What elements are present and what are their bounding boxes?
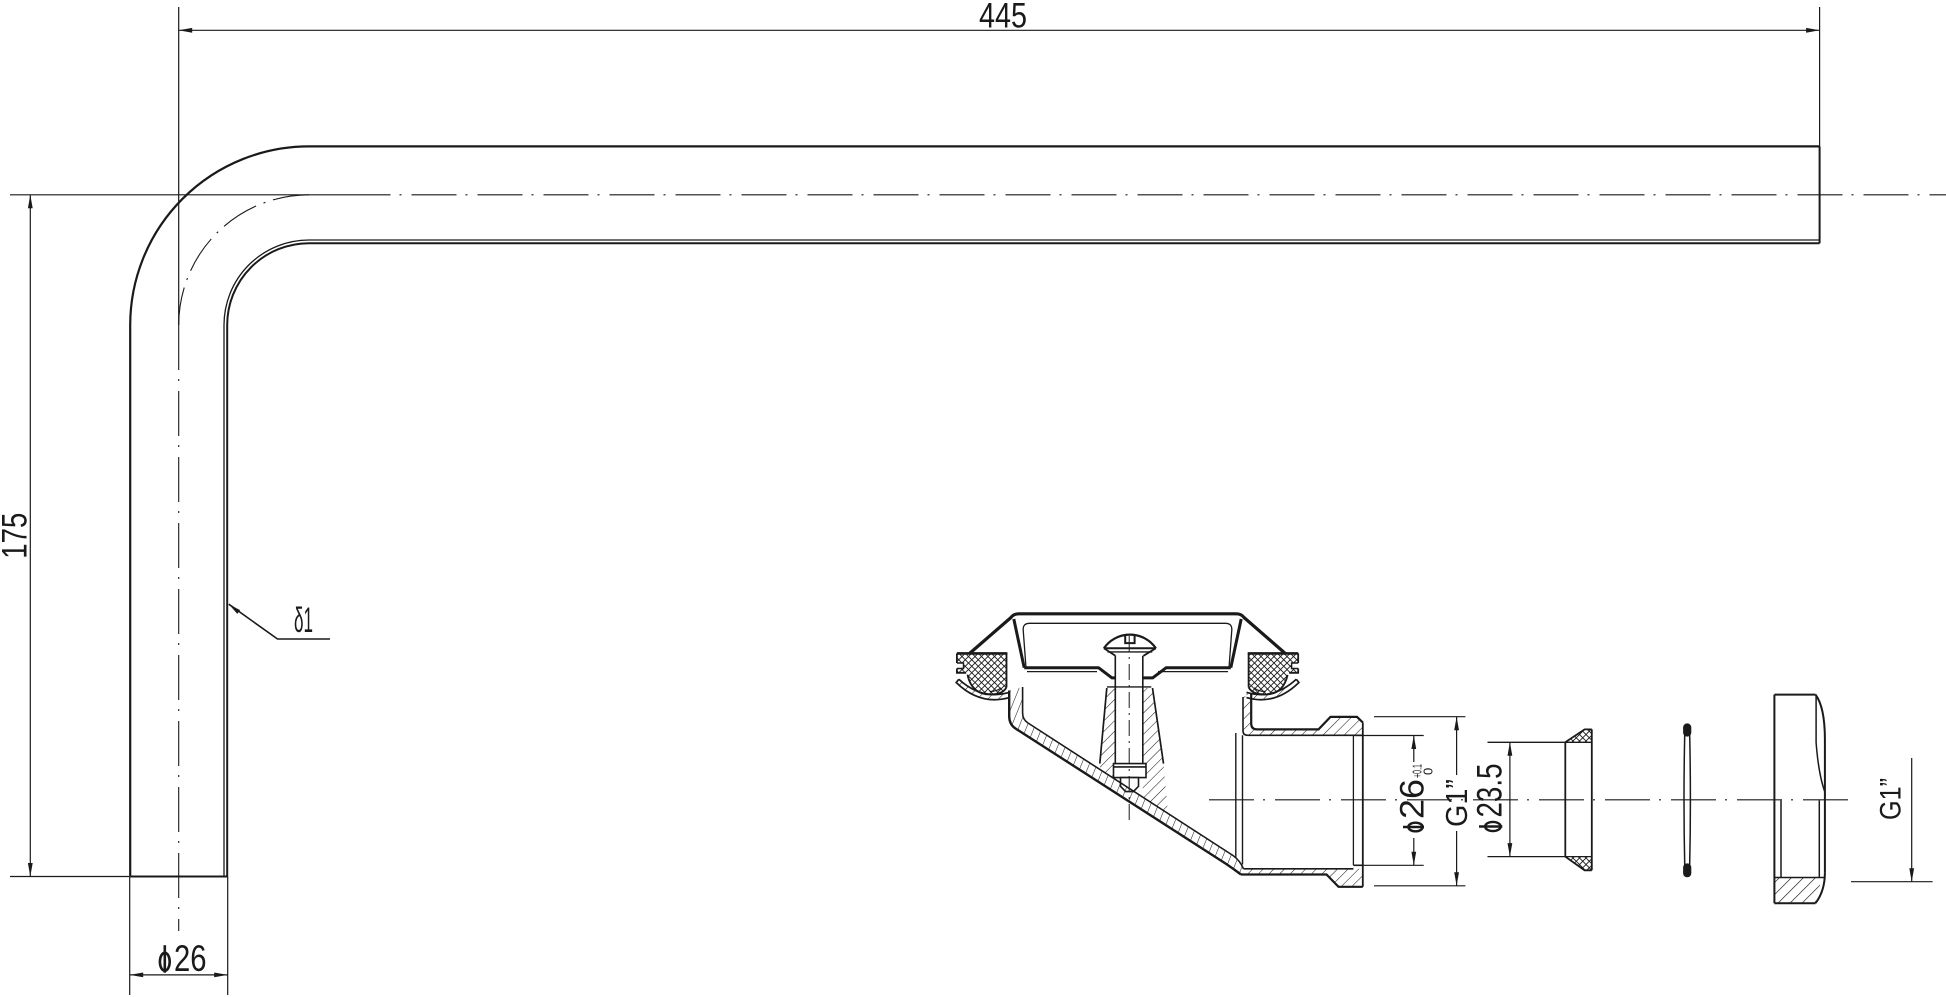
svg-text:G1”: G1” <box>1439 779 1474 827</box>
svg-text:26: 26 <box>174 938 207 979</box>
svg-text:δ1: δ1 <box>294 601 313 640</box>
svg-text:G1”: G1” <box>1875 778 1908 820</box>
svg-text:26: 26 <box>1394 779 1432 819</box>
svg-text:23.5: 23.5 <box>1471 764 1510 818</box>
svg-text:175: 175 <box>0 513 35 559</box>
svg-text:445: 445 <box>979 0 1027 35</box>
svg-text:0: 0 <box>1421 768 1436 775</box>
